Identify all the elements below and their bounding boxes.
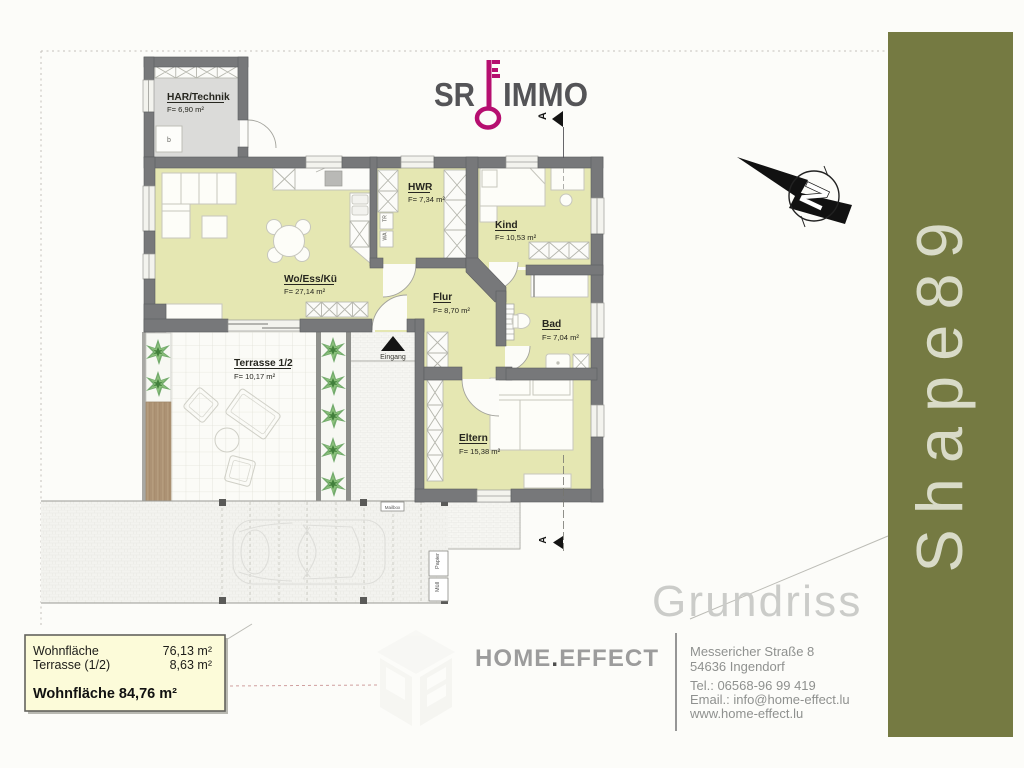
- svg-text:Email.: info@home-effect.lu: Email.: info@home-effect.lu: [690, 692, 850, 707]
- svg-text:F= 10,53 m²: F= 10,53 m²: [495, 233, 537, 242]
- svg-text:www.home-effect.lu: www.home-effect.lu: [689, 706, 803, 721]
- svg-text:Eltern: Eltern: [459, 433, 488, 444]
- svg-text:IMMO: IMMO: [503, 76, 588, 113]
- svg-text:Terrasse (1/2): Terrasse (1/2): [33, 658, 110, 672]
- svg-text:SR: SR: [434, 76, 475, 113]
- svg-text:A: A: [537, 112, 549, 120]
- svg-text:Papier: Papier: [435, 553, 441, 569]
- svg-text:HAR/Technik: HAR/Technik: [167, 92, 230, 103]
- svg-text:Grundriss: Grundriss: [652, 577, 863, 626]
- svg-text:Wo/Ess/Kü: Wo/Ess/Kü: [284, 274, 337, 285]
- svg-text:Terrasse 1/2: Terrasse 1/2: [234, 358, 293, 369]
- svg-text:WA: WA: [383, 232, 389, 241]
- svg-text:F= 10,17 m²: F= 10,17 m²: [234, 372, 276, 381]
- svg-text:HOME.EFFECT: HOME.EFFECT: [475, 645, 659, 672]
- svg-text:Wohnfläche 84,76 m²: Wohnfläche 84,76 m²: [33, 686, 177, 702]
- svg-text:Bad: Bad: [542, 319, 561, 330]
- svg-text:Flur: Flur: [433, 292, 452, 303]
- svg-text:F= 8,70 m²: F= 8,70 m²: [433, 306, 470, 315]
- svg-text:F= 6,90 m²: F= 6,90 m²: [167, 105, 204, 114]
- svg-text:Kind: Kind: [495, 220, 518, 231]
- svg-text:F= 27,14 m²: F= 27,14 m²: [284, 287, 326, 296]
- svg-text:TR: TR: [383, 215, 389, 222]
- svg-text:Müll: Müll: [435, 582, 441, 592]
- svg-text:HWR: HWR: [408, 182, 433, 193]
- svg-text:Wohnfläche: Wohnfläche: [33, 644, 99, 658]
- svg-text:54636 Ingendorf: 54636 Ingendorf: [690, 659, 785, 674]
- svg-text:Mailbox: Mailbox: [385, 505, 401, 510]
- svg-text:b: b: [167, 137, 171, 144]
- svg-text:F= 7,34 m²: F= 7,34 m²: [408, 195, 445, 204]
- svg-text:F= 7,04 m²: F= 7,04 m²: [542, 333, 579, 342]
- svg-text:8,63 m²: 8,63 m²: [170, 658, 212, 672]
- svg-text:Eingang: Eingang: [380, 354, 406, 361]
- svg-text:Tel.: 06568-96 99 419: Tel.: 06568-96 99 419: [690, 678, 816, 693]
- svg-text:76,13 m²: 76,13 m²: [163, 644, 212, 658]
- svg-text:Shape89: Shape89: [903, 207, 976, 572]
- svg-text:F= 15,38 m²: F= 15,38 m²: [459, 447, 501, 456]
- svg-text:Messericher Straße 8: Messericher Straße 8: [690, 644, 814, 659]
- svg-text:A: A: [538, 536, 549, 543]
